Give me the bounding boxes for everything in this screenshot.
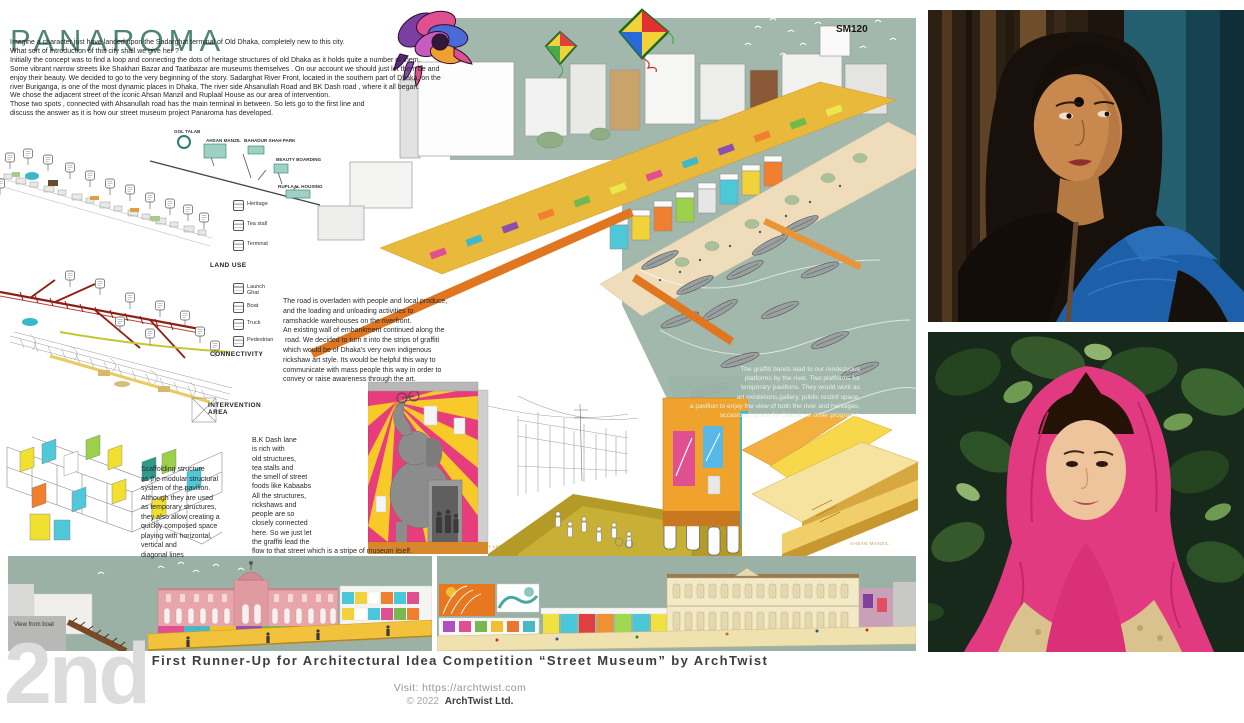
copyright-year: © 2022 (407, 696, 439, 707)
road-description-text: The road is overladen with people and lo… (283, 297, 447, 385)
legend-item-heritage: Heritage (233, 200, 268, 211)
ruplaal-housing-cluster (286, 190, 310, 198)
intro-paragraph: Imagine a character just have landed upo… (10, 39, 441, 119)
beauty-boarding-cluster (274, 164, 288, 173)
tea-stall-icon (233, 220, 244, 231)
ahsan-manzil-plaza-axonometric (742, 414, 918, 566)
competition-poster-page: PANAROMA Imagine a character just have l… (0, 0, 1244, 723)
map-label-gol-talab: GOL TALAB (174, 129, 201, 134)
map-label-ahsan-manzil: AHSAN MANZIL (206, 138, 241, 143)
land-use-diagram (0, 146, 235, 276)
map-label-bahadur-shah-park: BAHADUR SHAH PARK (244, 138, 296, 143)
legend-item-pedestrian: Pedestrian (233, 336, 273, 347)
terminal-icon (233, 240, 244, 251)
entry-code-badge: SM120 (836, 24, 868, 35)
truck-icon (233, 319, 244, 330)
small-kite-icon (540, 30, 588, 82)
rank-watermark: 2nd (4, 634, 148, 716)
legend-item-boat: Boat (233, 302, 273, 313)
mural-panels-left (439, 584, 539, 636)
map-label-ruplaal-housing: RUPLAAL HOUSING (278, 184, 323, 189)
connectivity-legend: Launch Ghat Boat Truck Pedestrian (233, 283, 273, 353)
graffiti-bands-text: The graffiti bands lead to our rendezvou… (560, 365, 860, 420)
caption-bk-dash-lane: B.K DASH LANE (466, 544, 507, 549)
portrait-2-illustration (928, 332, 1244, 652)
launch-ghat-icon (233, 283, 244, 294)
copyright-line: © 2022 ArchTwist Ltd. (130, 696, 790, 707)
river-elevation-right (437, 556, 916, 651)
award-title: First Runner-Up for Architectural Idea C… (130, 653, 790, 668)
pond-marker (25, 172, 39, 180)
land-use-callout-bubbles (0, 149, 209, 229)
pedestrian-icon (233, 336, 244, 347)
land-use-legend: Heritage Tea stall Terminal (233, 200, 268, 260)
legend-item-truck: Truck (233, 319, 273, 330)
website-link[interactable]: Visit: https://archtwist.com (130, 682, 790, 694)
section-label-intervention-area: INTERVENTION AREA (208, 402, 261, 416)
section-label-land-use: LAND USE (210, 262, 246, 269)
heritage-icon (233, 200, 244, 211)
bahadur-shah-park-cluster (248, 146, 264, 154)
designer-portrait-photo-1 (928, 10, 1244, 322)
caption-view-from-boat: View from boat (14, 622, 54, 628)
heritage-building-elevation (667, 568, 859, 638)
bkdash-lane-description-text: B.K Dash lane is rich with old structure… (252, 436, 412, 556)
large-kite-icon (612, 8, 682, 72)
legend-item-launch-ghat: Launch Ghat (233, 283, 273, 296)
legend-item-tea-stall: Tea stall (233, 220, 268, 231)
copyright-company: ArchTwist Ltd. (445, 696, 514, 707)
legend-item-terminal: Terminal (233, 240, 268, 251)
designer-portrait-photo-2 (928, 332, 1244, 652)
map-label-beauty-boarding: BEAUTY BOARDING (276, 157, 322, 162)
scaffolding-description-text: Scaffolding structure as the modular str… (141, 465, 220, 560)
boat-icon (233, 302, 244, 313)
caption-ahsan-manzil: AHSAN MANZIL (850, 541, 889, 546)
portrait-1-illustration (928, 10, 1244, 322)
